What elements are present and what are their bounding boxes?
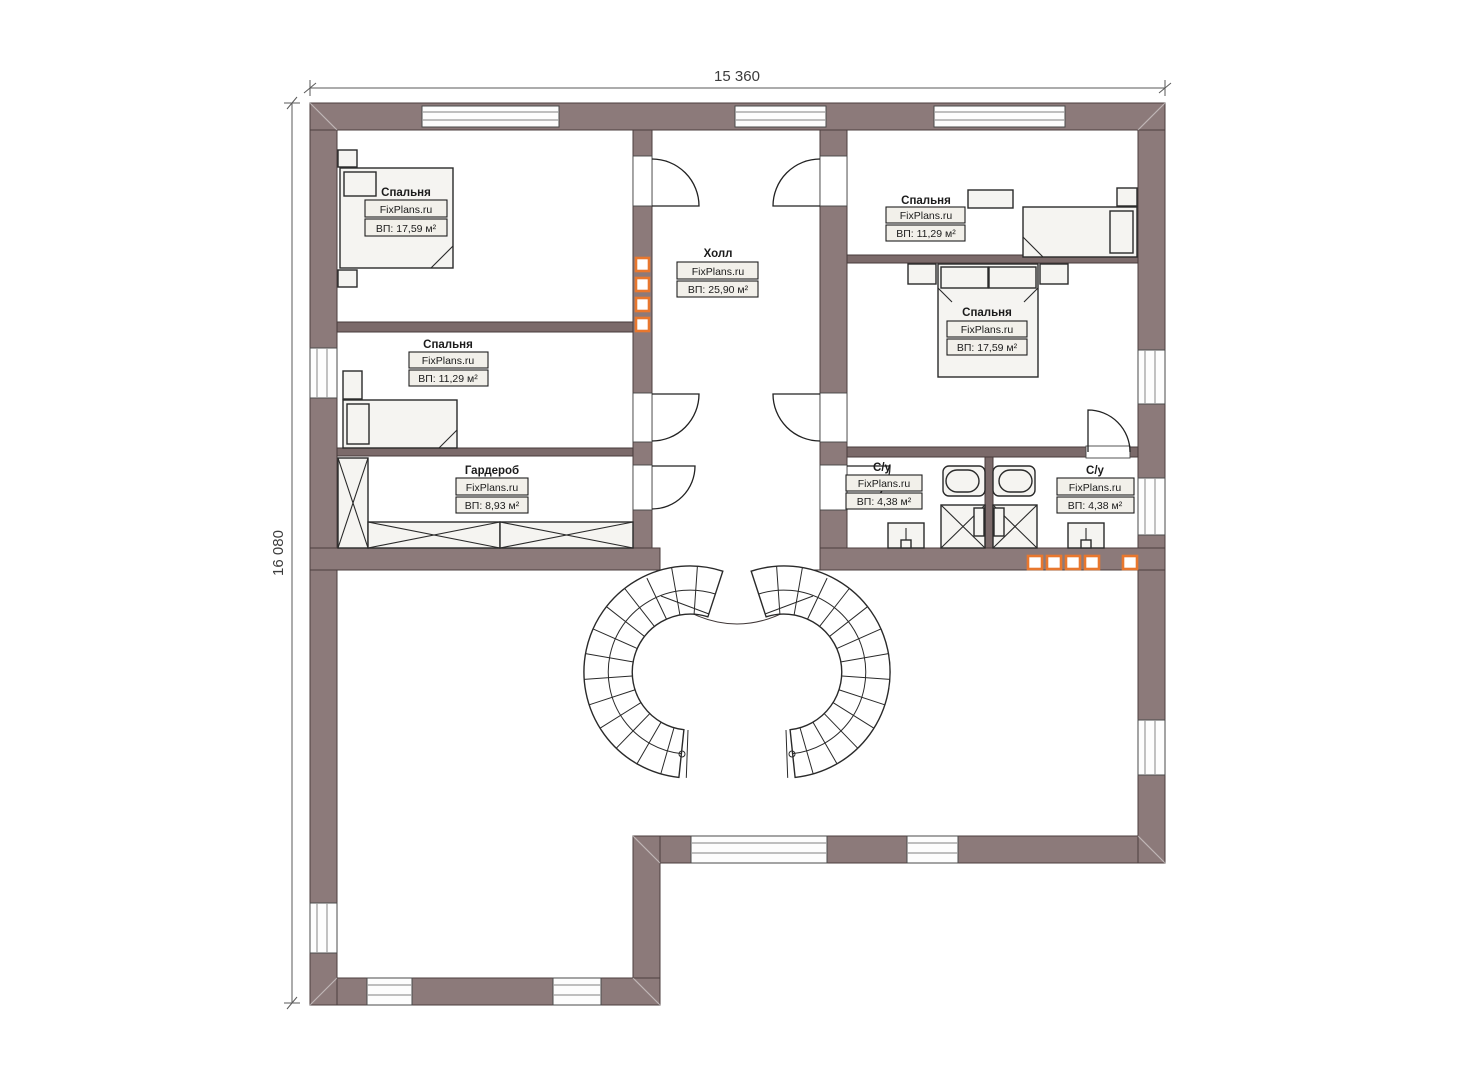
floor-plan-drawing: 15 360 16 080 (0, 0, 1473, 1080)
brand-label: FixPlans.ru (466, 482, 519, 494)
sink-icon (994, 508, 1004, 536)
brand-label: FixPlans.ru (858, 478, 911, 490)
area-label: ВП: 8,93 м² (465, 500, 520, 512)
door (773, 156, 847, 206)
room-name: С/у (1086, 465, 1105, 477)
room-label-bedroom-mid-left: Спальня FixPlans.ru ВП: 11,29 м² (409, 339, 488, 386)
vent-icon (1066, 556, 1080, 569)
door (633, 156, 699, 206)
room-name: С/у (873, 462, 892, 474)
room-name: Холл (704, 248, 733, 260)
window (1138, 720, 1165, 775)
window (553, 978, 601, 1005)
nightstand (1117, 188, 1137, 206)
window (367, 978, 412, 1005)
room-name: Спальня (901, 195, 951, 207)
brand-label: FixPlans.ru (422, 355, 475, 367)
brand-label: FixPlans.ru (692, 266, 745, 278)
door (773, 393, 847, 442)
area-label: ВП: 17,59 м² (957, 342, 1018, 354)
room-name: Гардероб (465, 465, 519, 477)
window (1138, 350, 1165, 404)
room-label-bedroom-top-right: Спальня FixPlans.ru ВП: 11,29 м² (886, 195, 965, 241)
area-label: ВП: 4,38 м² (857, 496, 912, 508)
nightstand (343, 371, 362, 399)
dimension-top: 15 360 (304, 68, 1171, 96)
nightstand (908, 264, 936, 284)
toilet-icon (888, 523, 924, 548)
wall-bottom-left (310, 978, 660, 1005)
room-label-bathroom-right: С/у FixPlans.ru ВП: 4,38 м² (1057, 465, 1134, 513)
vent-icon (636, 298, 649, 311)
area-label: ВП: 17,59 м² (376, 223, 437, 235)
door (633, 393, 699, 442)
nightstand (1040, 264, 1068, 284)
dimension-top-label: 15 360 (714, 68, 760, 85)
dresser (968, 190, 1013, 208)
room-label-wardrobe: Гардероб FixPlans.ru ВП: 8,93 м² (456, 465, 528, 513)
wall-divider-wardrobe (337, 448, 633, 456)
wall-rooms-bottom-right (820, 548, 1165, 570)
window (1138, 478, 1165, 535)
window (691, 836, 827, 863)
sink-icon (974, 508, 984, 536)
area-label: ВП: 11,29 м² (896, 228, 956, 240)
brand-label: FixPlans.ru (380, 204, 433, 216)
vent-icon (1047, 556, 1061, 569)
room-name: Спальня (381, 187, 431, 199)
hall-floor (652, 130, 820, 624)
area-label: ВП: 25,90 м² (688, 284, 749, 296)
single-bed (343, 400, 457, 448)
staircase-right (751, 566, 890, 778)
area-label: ВП: 11,29 м² (418, 373, 478, 385)
bathtub-icon (993, 466, 1035, 496)
nightstand (338, 270, 357, 287)
window (422, 106, 559, 127)
vent-icon (1123, 556, 1137, 569)
vent-icon (1085, 556, 1099, 569)
wall-divider-left-bedrooms (337, 322, 633, 332)
dimension-left-label: 16 080 (270, 530, 287, 576)
window (907, 836, 958, 863)
room-name: Спальня (423, 339, 473, 351)
window (735, 106, 826, 127)
room-label-bathroom-left: С/у FixPlans.ru ВП: 4,38 м² (846, 462, 922, 509)
brand-label: FixPlans.ru (900, 210, 953, 222)
window (934, 106, 1065, 127)
dimension-left: 16 080 (270, 97, 300, 1009)
wall-rooms-bottom-left (310, 548, 660, 570)
brand-label: FixPlans.ru (1069, 482, 1122, 494)
single-bed (1023, 207, 1137, 257)
bathtub-icon (943, 466, 985, 496)
toilet-icon (1068, 523, 1104, 548)
room-name: Спальня (962, 307, 1012, 319)
vent-icon (1028, 556, 1042, 569)
vent-icon (636, 258, 649, 271)
double-bed (340, 168, 453, 268)
door (633, 465, 695, 510)
vent-icon (636, 318, 649, 331)
room-label-hall: Холл FixPlans.ru ВП: 25,90 м² (677, 248, 758, 297)
window (310, 348, 337, 398)
nightstand (338, 150, 357, 167)
window (310, 903, 337, 953)
vent-markers (636, 258, 1137, 569)
room-labels: Спальня FixPlans.ru ВП: 17,59 м² Спальня… (365, 187, 1134, 513)
wall-bathroom-divider (985, 457, 993, 548)
door (1086, 410, 1130, 458)
vent-icon (636, 278, 649, 291)
brand-label: FixPlans.ru (961, 324, 1014, 336)
staircase-left (584, 566, 723, 778)
floor-plan-page: 15 360 16 080 (0, 0, 1473, 1080)
area-label: ВП: 4,38 м² (1068, 500, 1123, 512)
